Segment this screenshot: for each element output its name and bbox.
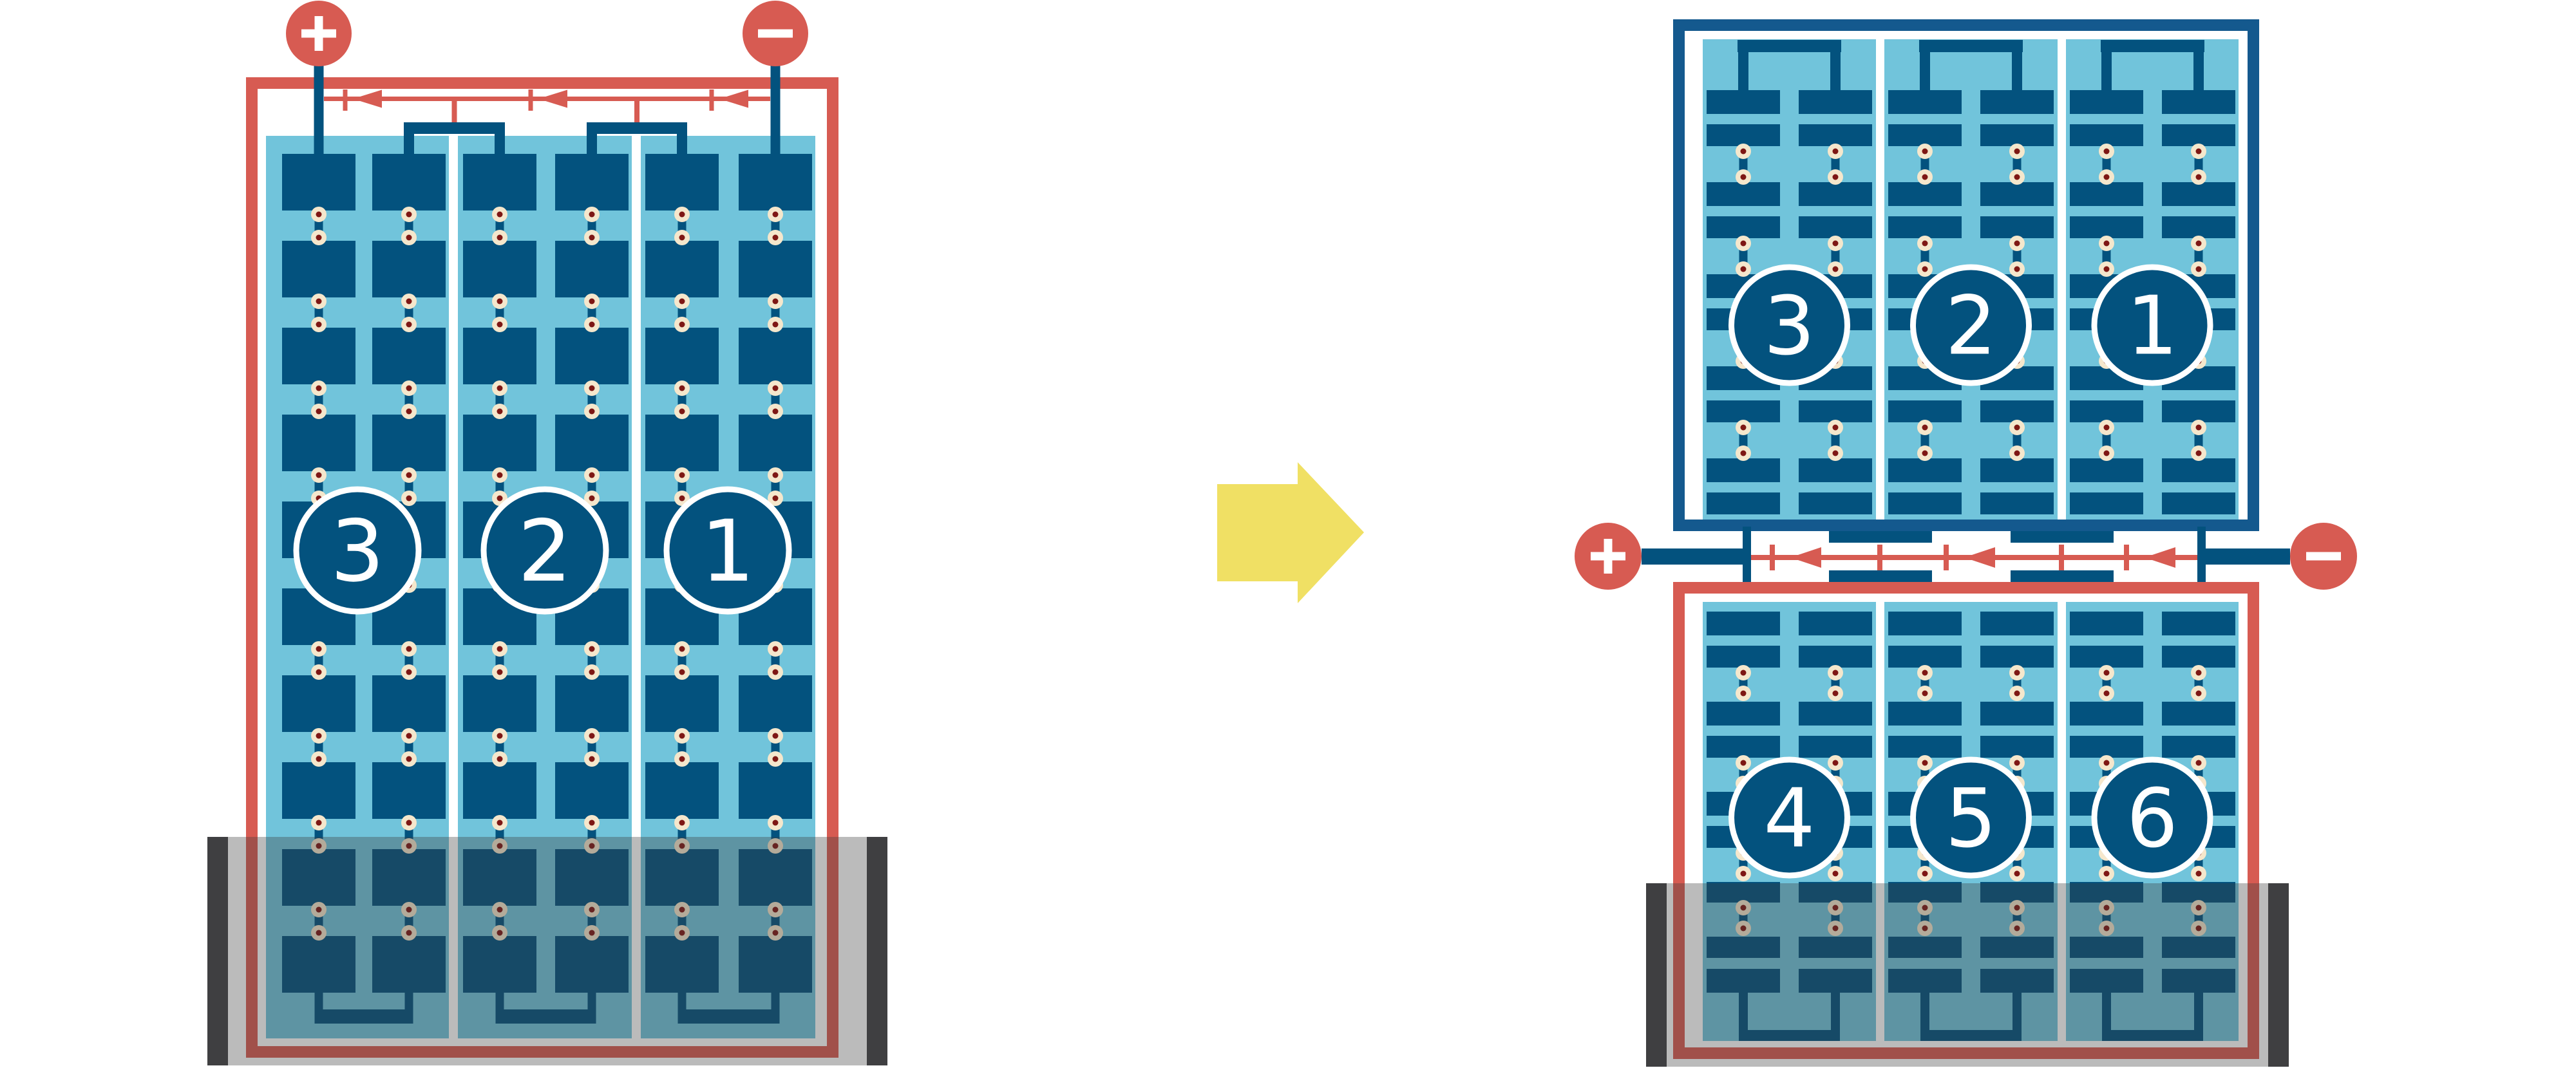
plus-icon <box>315 16 323 51</box>
rivet-core <box>497 473 503 478</box>
rivet-core <box>1922 451 1928 456</box>
rivet-core <box>2014 267 2020 272</box>
rivet-core <box>773 496 779 501</box>
battery-plate <box>2162 612 2235 635</box>
current-flow-tick <box>2059 545 2064 570</box>
battery-plate <box>463 762 536 819</box>
inter-row-connector <box>1829 570 1932 582</box>
rivet-core <box>406 386 412 391</box>
battery-plate <box>282 415 355 471</box>
rivet-core <box>2014 670 2020 676</box>
battery-plate <box>1980 216 2054 238</box>
current-flow-tick <box>1944 545 1949 570</box>
battery-plate <box>1707 124 1780 146</box>
rivet-core <box>679 409 685 415</box>
battery-plate <box>463 415 536 471</box>
rivet-core <box>2014 451 2020 456</box>
cell-number: 1 <box>701 502 755 601</box>
battery-plate <box>1799 90 1872 114</box>
cell-separator <box>1876 39 1884 520</box>
strap-leg <box>2101 52 2112 93</box>
rivet-core <box>1741 670 1747 676</box>
battery-plate <box>463 154 536 211</box>
strap-leg <box>1920 52 1930 93</box>
rivet-core <box>406 409 412 415</box>
battery-plate <box>1888 612 1962 635</box>
rivet-core <box>316 386 322 391</box>
rivet-core <box>1741 174 1747 180</box>
battery-plate <box>555 675 629 732</box>
rivet-core <box>773 409 779 415</box>
strap-leg <box>495 134 505 156</box>
battery-plate <box>1707 216 1780 238</box>
rivet-core <box>2196 241 2202 247</box>
rivet-core <box>497 299 503 304</box>
battery-case-bar <box>867 837 887 1065</box>
terminal-tab <box>1743 527 1751 582</box>
rivet-core <box>679 299 685 304</box>
cell-number: 2 <box>518 502 572 601</box>
cell-number-badge: 1 <box>667 489 789 612</box>
battery-plate <box>1707 612 1780 635</box>
rivet-core <box>589 212 595 218</box>
rivet-core <box>773 820 779 826</box>
rivet-core <box>589 646 595 652</box>
rivet-core <box>1922 425 1928 431</box>
rivet-core <box>1922 174 1928 180</box>
terminal-lead <box>771 64 781 193</box>
rivet-core <box>497 670 503 675</box>
rivet-core <box>589 756 595 762</box>
rivet-core <box>406 299 412 304</box>
rivet-core <box>679 496 685 501</box>
rivet-core <box>2196 451 2202 456</box>
cell-number: 4 <box>1763 771 1815 866</box>
battery-plate <box>1888 646 1962 668</box>
battery-plate <box>1707 736 1780 758</box>
rivet-core <box>2014 691 2020 697</box>
battery-plate <box>645 241 719 297</box>
rivet-core <box>1833 241 1839 247</box>
battery-plate <box>372 415 446 471</box>
battery-plate <box>282 241 355 297</box>
rivet-core <box>316 820 322 826</box>
rivet-core <box>589 299 595 304</box>
rivet-core <box>589 820 595 826</box>
cell-number-badge: 2 <box>1913 267 2029 383</box>
battery-plate <box>2070 90 2143 114</box>
rivet-core <box>1922 760 1928 766</box>
rivet-core <box>589 473 595 478</box>
rivet-core <box>2014 425 2020 431</box>
plus-icon <box>1604 539 1613 574</box>
battery-plate <box>555 762 629 819</box>
rivet-core <box>589 670 595 675</box>
battery-plate <box>2162 124 2235 146</box>
battery-plate <box>645 675 719 732</box>
battery-plate <box>2070 216 2143 238</box>
rivet-core <box>497 733 503 739</box>
current-flow-arrowhead-icon <box>1790 547 1821 568</box>
rivet-core <box>773 756 779 762</box>
battery-plate <box>2162 182 2235 206</box>
rivet-core <box>679 820 685 826</box>
battery-plate <box>2070 612 2143 635</box>
cell-number-badge: 1 <box>2094 267 2210 383</box>
rivet-core <box>1922 149 1928 155</box>
terminal-tab <box>2197 527 2206 582</box>
minus-icon <box>758 30 793 38</box>
battery-plate <box>1888 702 1962 726</box>
cell-number: 5 <box>1945 771 1996 866</box>
rivet-core <box>679 235 685 241</box>
rivet-core <box>1922 670 1928 676</box>
rivet-core <box>1922 871 1928 877</box>
battery-plate <box>1707 702 1780 726</box>
rivet-core <box>679 212 685 218</box>
rivet-core <box>679 646 685 652</box>
rivet-core <box>2196 760 2202 766</box>
cell-number-badge: 3 <box>1732 267 1848 383</box>
strap-leg <box>2193 52 2204 93</box>
battery-plate <box>1888 216 1962 238</box>
strap-bar <box>1919 40 2023 52</box>
battery-plate <box>1799 492 1872 514</box>
battery-plate <box>739 415 812 471</box>
rivet-core <box>773 235 779 241</box>
battery-plate <box>1980 736 2054 758</box>
battery-case <box>1646 883 2289 1067</box>
rivet-core <box>497 409 503 415</box>
battery-plate <box>739 328 812 384</box>
rivet-core <box>679 473 685 478</box>
rivet-core <box>497 646 503 652</box>
battery-plate <box>1980 90 2054 114</box>
battery-plate <box>2070 458 2143 482</box>
rivet-core <box>679 322 685 328</box>
cell-number: 1 <box>2126 279 2178 373</box>
rivet-core <box>2104 871 2110 877</box>
cell-separator <box>2058 39 2066 520</box>
battery-plate <box>1888 492 1962 514</box>
rivet-core <box>773 733 779 739</box>
rivet-core <box>406 756 412 762</box>
battery-plate <box>555 241 629 297</box>
cell-number-badge: 2 <box>484 489 606 612</box>
rivet-core <box>316 733 322 739</box>
rivet-core <box>2196 267 2202 272</box>
strap-bar <box>2101 40 2204 52</box>
rivet-core <box>1833 760 1839 766</box>
battery-plate <box>463 328 536 384</box>
rivet-core <box>1741 871 1747 877</box>
rivet-core <box>2196 174 2202 180</box>
rivet-core <box>773 670 779 675</box>
rivet-core <box>2104 691 2110 697</box>
rivet-core <box>1741 760 1747 766</box>
rivet-core <box>773 299 779 304</box>
battery-plate <box>372 241 446 297</box>
rivet-core <box>406 235 412 241</box>
battery-plate <box>372 762 446 819</box>
connector-stem <box>452 101 457 122</box>
rivet-core <box>679 756 685 762</box>
battery-plate <box>645 328 719 384</box>
strap-bar <box>404 122 505 134</box>
battery-plate <box>1707 492 1780 514</box>
battery-plate <box>1707 90 1780 114</box>
rivet-core <box>589 409 595 415</box>
battery-plate <box>555 154 629 211</box>
connector-stem <box>634 101 639 122</box>
battery-plate <box>1799 702 1872 726</box>
inter-row-connector <box>2011 570 2114 582</box>
rivet-core <box>679 670 685 675</box>
battery-plate <box>2070 736 2143 758</box>
rivet-core <box>589 322 595 328</box>
inter-row-connector <box>1829 531 1932 543</box>
rivet-core <box>2196 425 2202 431</box>
battery-diagram: +−321321+−456 <box>0 0 2576 1068</box>
rivet-core <box>1741 149 1747 155</box>
battery-plate <box>2162 458 2235 482</box>
battery-case <box>207 837 887 1065</box>
battery-plate <box>2070 400 2143 422</box>
rivet-core <box>1833 451 1839 456</box>
rivet-core <box>2014 871 2020 877</box>
terminal-lead <box>1642 548 1743 565</box>
battery-plate <box>2070 492 2143 514</box>
rivet-core <box>2104 241 2110 247</box>
rivet-core <box>773 322 779 328</box>
battery-case-bar <box>1646 883 1667 1067</box>
rivet-core <box>1741 267 1747 272</box>
current-flow-tick <box>2124 545 2129 570</box>
rivet-core <box>1833 149 1839 155</box>
battery-plate <box>1980 492 2054 514</box>
battery-plate <box>1799 400 1872 422</box>
rivet-core <box>316 646 322 652</box>
rivet-core <box>773 212 779 218</box>
battery-plate <box>739 675 812 732</box>
battery-plate <box>739 762 812 819</box>
battery-plate <box>282 762 355 819</box>
cell-number: 6 <box>2126 771 2178 866</box>
rivet-core <box>589 386 595 391</box>
rivet-core <box>2014 241 2020 247</box>
battery-plate <box>555 415 629 471</box>
rivet-core <box>497 820 503 826</box>
current-flow-arrowhead-icon <box>1964 547 1995 568</box>
rivet-core <box>497 212 503 218</box>
strap-leg <box>2012 52 2022 93</box>
rivet-core <box>1741 241 1747 247</box>
rivet-core <box>316 235 322 241</box>
rivet-core <box>679 733 685 739</box>
battery-plate <box>1980 702 2054 726</box>
battery-plate <box>1799 736 1872 758</box>
rivet-core <box>773 473 779 478</box>
battery-plate <box>1980 458 2054 482</box>
rivet-core <box>406 473 412 478</box>
battery-plate <box>2162 216 2235 238</box>
rivet-core <box>2196 670 2202 676</box>
rivet-core <box>589 733 595 739</box>
rivet-core <box>1833 267 1839 272</box>
battery-plate <box>372 328 446 384</box>
terminal-lead <box>2206 548 2290 565</box>
terminal-lead <box>314 64 324 193</box>
battery-plate <box>1980 612 2054 635</box>
cell-number-badge: 6 <box>2094 760 2210 876</box>
rivet-core <box>406 670 412 675</box>
battery-plate <box>739 241 812 297</box>
rivet-core <box>316 409 322 415</box>
diagram-canvas: +−321321+−456 <box>0 0 2576 1068</box>
rivet-core <box>1741 451 1747 456</box>
battery-plate <box>1799 216 1872 238</box>
battery-plate <box>463 675 536 732</box>
rivet-core <box>316 473 322 478</box>
strap-leg <box>1738 52 1748 93</box>
rivet-core <box>2014 760 2020 766</box>
battery-plate <box>372 154 446 211</box>
cell-number: 3 <box>330 502 384 601</box>
battery-plate <box>2162 492 2235 514</box>
rivet-core <box>406 733 412 739</box>
rivet-core <box>1833 174 1839 180</box>
rivet-core <box>497 386 503 391</box>
rivet-core <box>1833 670 1839 676</box>
rivet-core <box>2196 149 2202 155</box>
strap-bar <box>1738 40 1841 52</box>
battery-plate <box>2070 646 2143 668</box>
battery-plate <box>1888 400 1962 422</box>
rivet-core <box>773 646 779 652</box>
rivet-core <box>589 235 595 241</box>
battery-plate <box>645 762 719 819</box>
left-battery: +−321 <box>0 0 887 1065</box>
battery-case-overlay <box>1646 883 2289 1067</box>
rivet-core <box>2196 691 2202 697</box>
battery-plate <box>2162 400 2235 422</box>
rivet-core <box>406 322 412 328</box>
battery-plate <box>2162 702 2235 726</box>
strap-bar <box>587 122 687 134</box>
minus-icon <box>2306 552 2341 561</box>
cell-number-badge: 5 <box>1913 760 2029 876</box>
rivet-core <box>316 670 322 675</box>
battery-plate <box>1888 736 1962 758</box>
transform-arrow-icon <box>1217 462 1364 603</box>
battery-case-bar <box>2268 883 2289 1067</box>
battery-plate <box>1888 90 1962 114</box>
rivet-core <box>497 322 503 328</box>
battery-plate <box>1799 458 1872 482</box>
battery-plate <box>1799 612 1872 635</box>
strap-leg <box>677 134 687 156</box>
battery-plate <box>1888 124 1962 146</box>
battery-plate <box>282 675 355 732</box>
rivet-core <box>589 496 595 501</box>
battery-plate <box>1888 182 1962 206</box>
battery-plate <box>1799 124 1872 146</box>
battery-plate <box>1707 458 1780 482</box>
rivet-core <box>1922 241 1928 247</box>
cell-number: 3 <box>1763 279 1815 373</box>
rivet-core <box>679 386 685 391</box>
battery-plate <box>2070 702 2143 726</box>
current-flow-tick <box>1770 545 1775 570</box>
strap-leg <box>1830 52 1841 93</box>
battery-plate <box>2162 90 2235 114</box>
rivet-core <box>1922 691 1928 697</box>
rivet-core <box>2104 267 2110 272</box>
rivet-core <box>316 212 322 218</box>
strap-leg <box>404 134 414 156</box>
battery-plate <box>1799 182 1872 206</box>
battery-plate <box>645 415 719 471</box>
inter-row-connector <box>2011 531 2114 543</box>
current-flow-tick <box>529 89 533 111</box>
battery-plate <box>1980 646 2054 668</box>
battery-case-overlay <box>207 837 887 1065</box>
strap-leg <box>587 134 597 156</box>
battery-plate <box>282 328 355 384</box>
rivet-core <box>406 646 412 652</box>
rivet-core <box>1741 425 1747 431</box>
rivet-core <box>2104 149 2110 155</box>
rivet-core <box>316 322 322 328</box>
rivet-core <box>2104 760 2110 766</box>
rivet-core <box>1833 871 1839 877</box>
rivet-core <box>316 756 322 762</box>
positive-terminal: + <box>0 0 352 66</box>
current-flow-arrowhead-icon <box>2145 547 2175 568</box>
rivet-core <box>1833 425 1839 431</box>
rivet-core <box>2104 451 2110 456</box>
battery-plate <box>1980 400 2054 422</box>
rivet-core <box>2104 670 2110 676</box>
battery-plate <box>1707 646 1780 668</box>
battery-plate <box>1980 182 2054 206</box>
battery-plate <box>2162 736 2235 758</box>
rivet-core <box>1922 267 1928 272</box>
battery-plate <box>1799 646 1872 668</box>
battery-plate <box>2070 182 2143 206</box>
current-flow-tick <box>710 89 714 111</box>
battery-plate <box>1888 458 1962 482</box>
rivet-core <box>2104 425 2110 431</box>
rivet-core <box>406 820 412 826</box>
battery-plate <box>1707 400 1780 422</box>
battery-plate <box>1707 182 1780 206</box>
cell-number-badge: 3 <box>296 489 419 612</box>
rivet-core <box>497 235 503 241</box>
rivet-core <box>406 212 412 218</box>
battery-plate <box>645 154 719 211</box>
rivet-core <box>1741 691 1747 697</box>
rivet-core <box>2104 174 2110 180</box>
battery-case-bar <box>207 837 228 1065</box>
rivet-core <box>2014 149 2020 155</box>
battery-plate <box>2070 124 2143 146</box>
negative-terminal: − <box>0 0 808 66</box>
rivet-core <box>773 386 779 391</box>
right-battery-top-row: 321 <box>1679 25 2253 525</box>
battery-plate <box>555 328 629 384</box>
rivet-core <box>406 496 412 501</box>
